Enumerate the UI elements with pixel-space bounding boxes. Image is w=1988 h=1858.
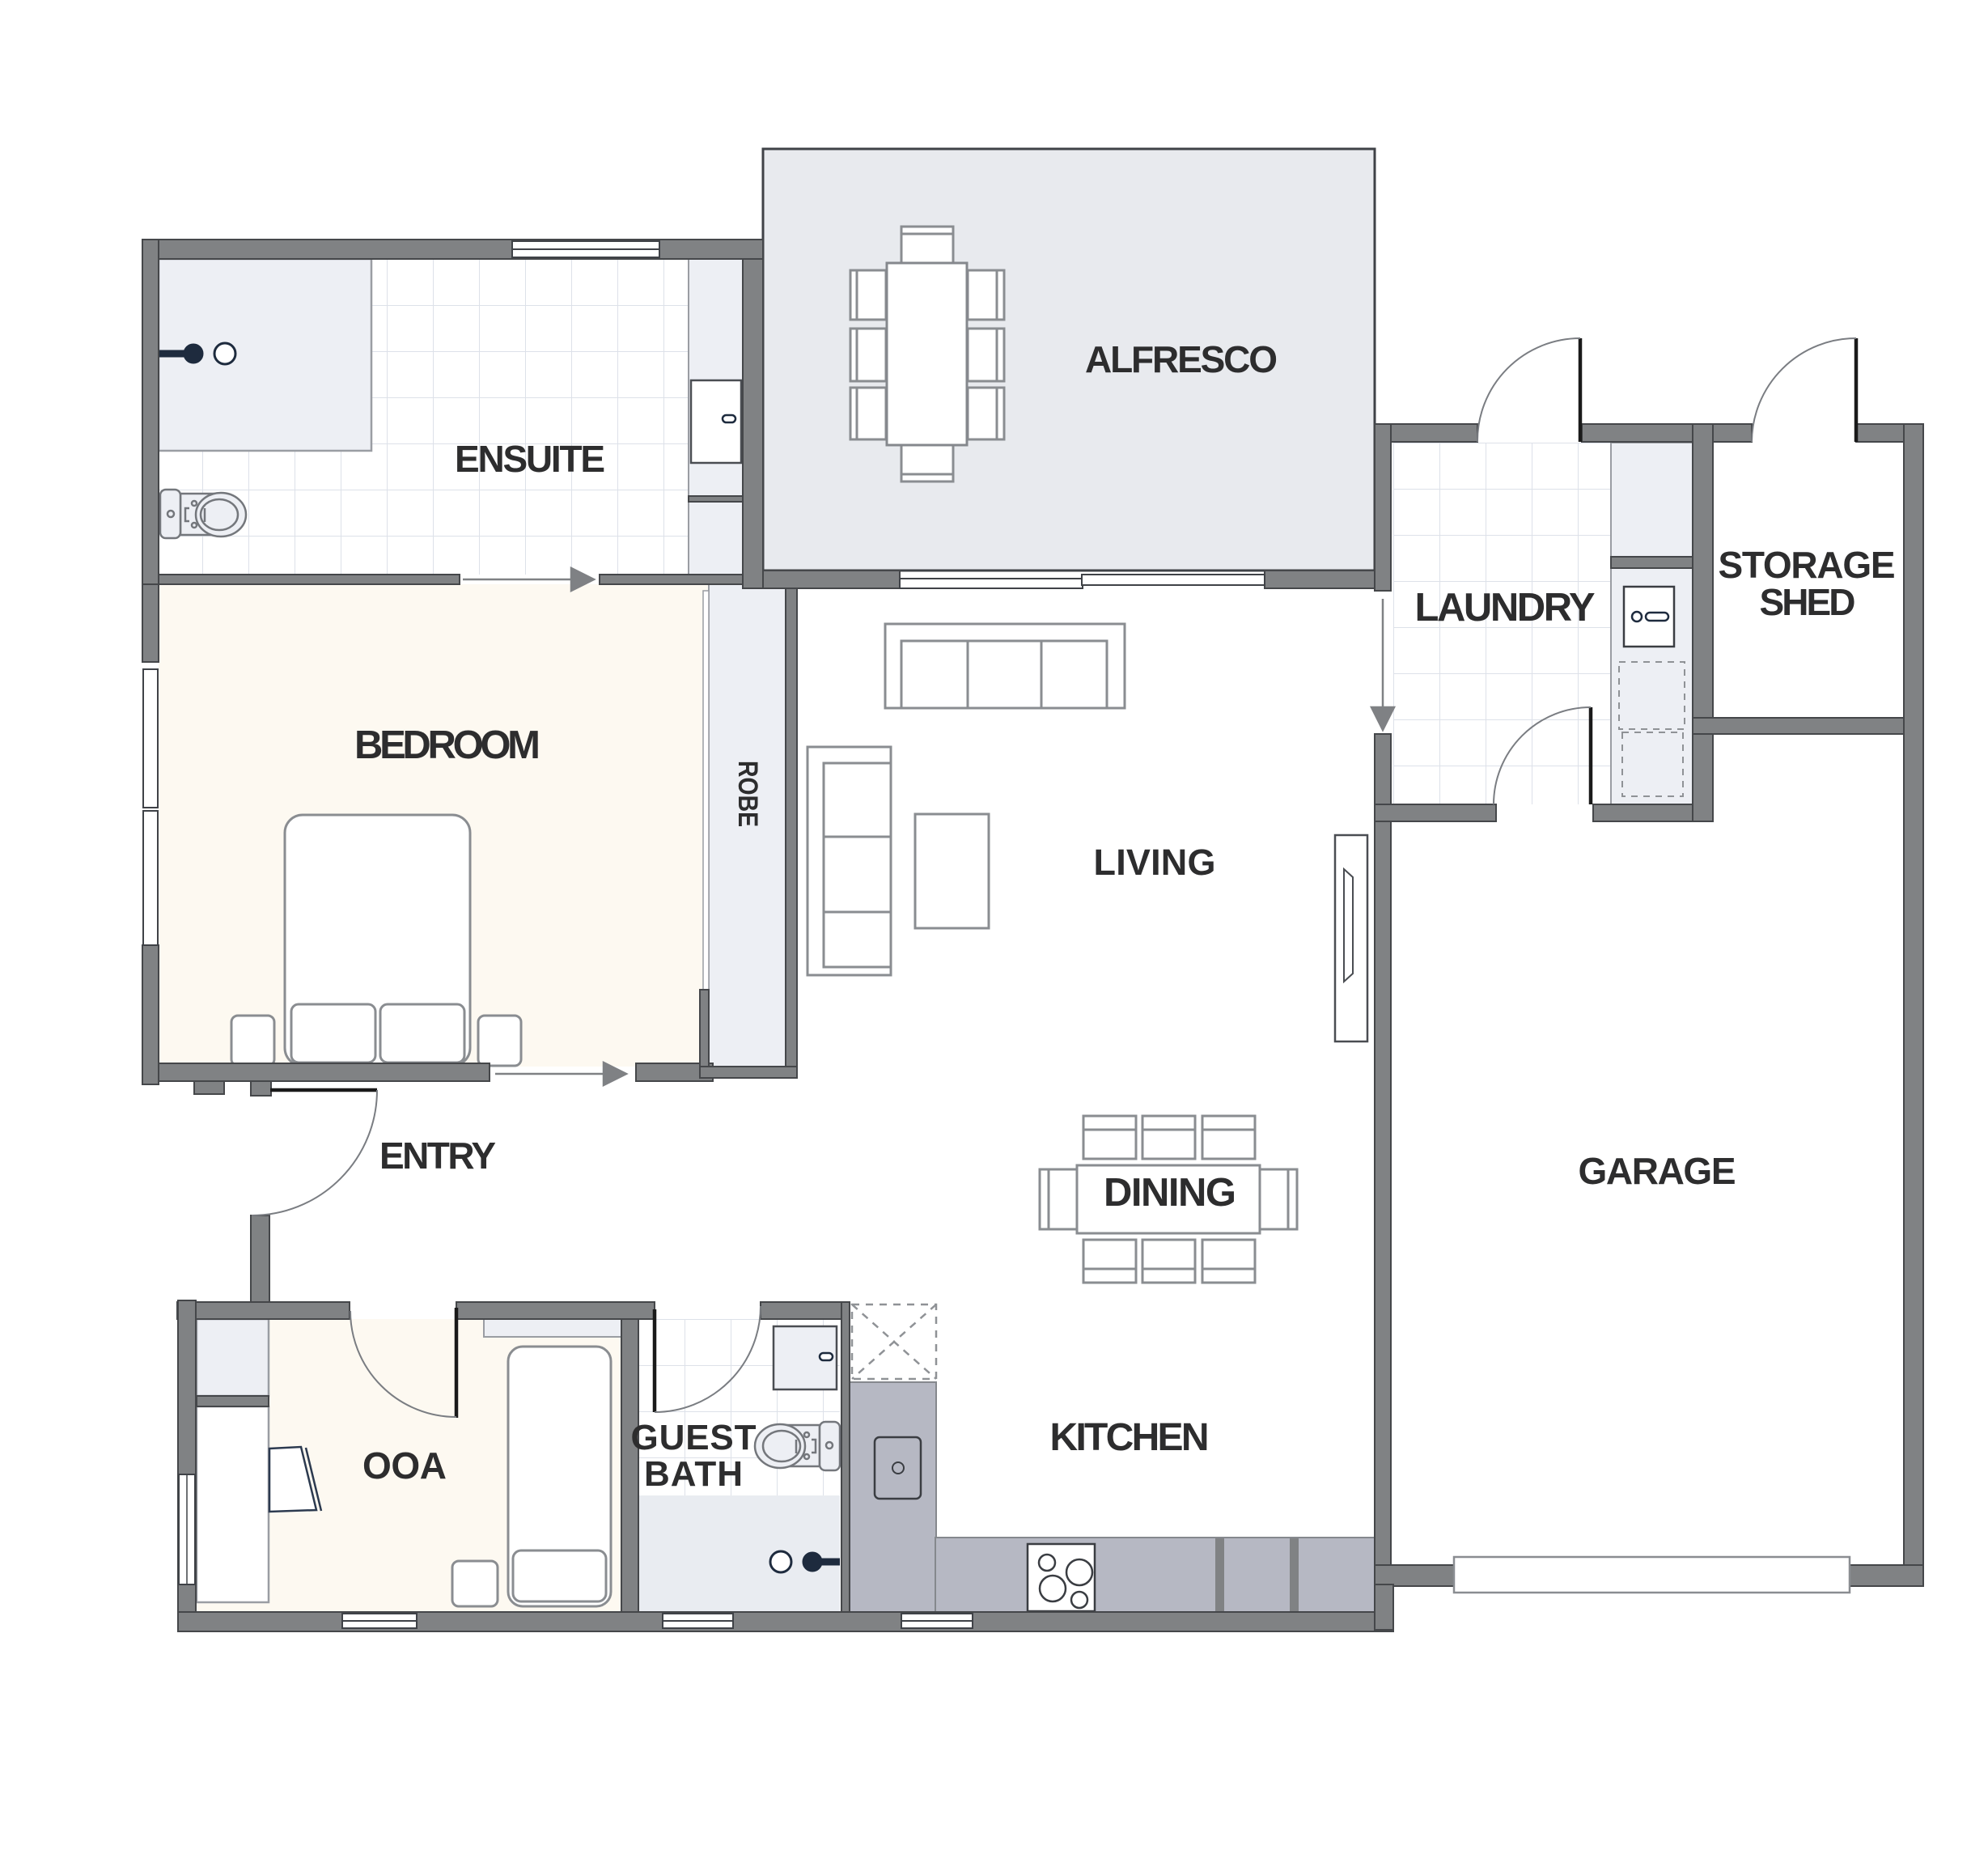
svg-text:DINING: DINING <box>1104 1171 1236 1215</box>
svg-text:ALFRESCO: ALFRESCO <box>1085 338 1278 380</box>
svg-text:GARAGE: GARAGE <box>1579 1150 1736 1192</box>
svg-text:KITCHEN: KITCHEN <box>1050 1416 1210 1459</box>
svg-text:LIVING: LIVING <box>1094 842 1216 883</box>
svg-text:OOA: OOA <box>362 1444 447 1487</box>
svg-text:ENTRY: ENTRY <box>379 1135 496 1177</box>
svg-text:SHED: SHED <box>1760 581 1856 623</box>
svg-text:BATH: BATH <box>644 1454 743 1494</box>
svg-text:LAUNDRY: LAUNDRY <box>1415 586 1596 630</box>
svg-text:STORAGE: STORAGE <box>1719 544 1896 586</box>
svg-text:ENSUITE: ENSUITE <box>455 438 605 480</box>
svg-text:ROBE: ROBE <box>732 761 763 827</box>
svg-text:BEDROOM: BEDROOM <box>354 723 540 767</box>
svg-text:GUEST: GUEST <box>631 1418 757 1457</box>
